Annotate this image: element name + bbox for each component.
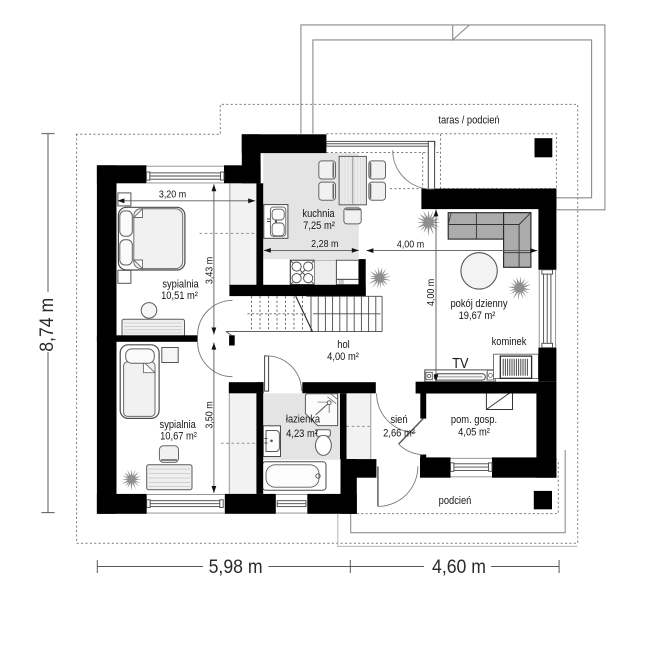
svg-text:4,05 m²: 4,05 m² [458, 427, 490, 439]
svg-text:3,20 m: 3,20 m [159, 189, 186, 201]
svg-text:4,60 m: 4,60 m [432, 556, 486, 578]
svg-text:7,25 m²: 7,25 m² [303, 221, 335, 233]
svg-text:kuchnia: kuchnia [302, 209, 334, 221]
svg-text:4,00 m: 4,00 m [397, 239, 424, 251]
svg-text:taras / podcień: taras / podcień [438, 115, 500, 127]
svg-text:10,51 m²: 10,51 m² [161, 291, 198, 303]
svg-text:2,66 m²: 2,66 m² [383, 428, 415, 440]
svg-text:10,67 m²: 10,67 m² [160, 431, 197, 443]
svg-text:TV: TV [452, 354, 469, 371]
svg-text:2,28 m: 2,28 m [311, 238, 338, 250]
svg-text:pokój dzienny: pokój dzienny [450, 298, 508, 310]
svg-text:sień: sień [390, 415, 407, 427]
svg-text:3,43 m: 3,43 m [204, 257, 216, 284]
svg-text:8,74 m: 8,74 m [35, 298, 57, 352]
svg-text:4,00 m: 4,00 m [425, 279, 437, 306]
svg-text:4,00 m²: 4,00 m² [327, 352, 359, 364]
svg-text:5,98 m: 5,98 m [209, 556, 263, 578]
svg-text:19,67 m²: 19,67 m² [459, 310, 496, 322]
svg-text:sypialnia: sypialnia [162, 279, 199, 291]
svg-text:podcień: podcień [439, 495, 472, 507]
svg-text:pom. gosp.: pom. gosp. [451, 415, 497, 427]
svg-text:kominek: kominek [492, 336, 528, 348]
svg-text:sypialnia: sypialnia [160, 419, 197, 431]
svg-text:hol: hol [337, 340, 349, 352]
svg-text:3,50 m: 3,50 m [204, 401, 216, 428]
svg-text:łazienka: łazienka [286, 414, 321, 426]
svg-text:4,23 m²: 4,23 m² [286, 429, 318, 441]
